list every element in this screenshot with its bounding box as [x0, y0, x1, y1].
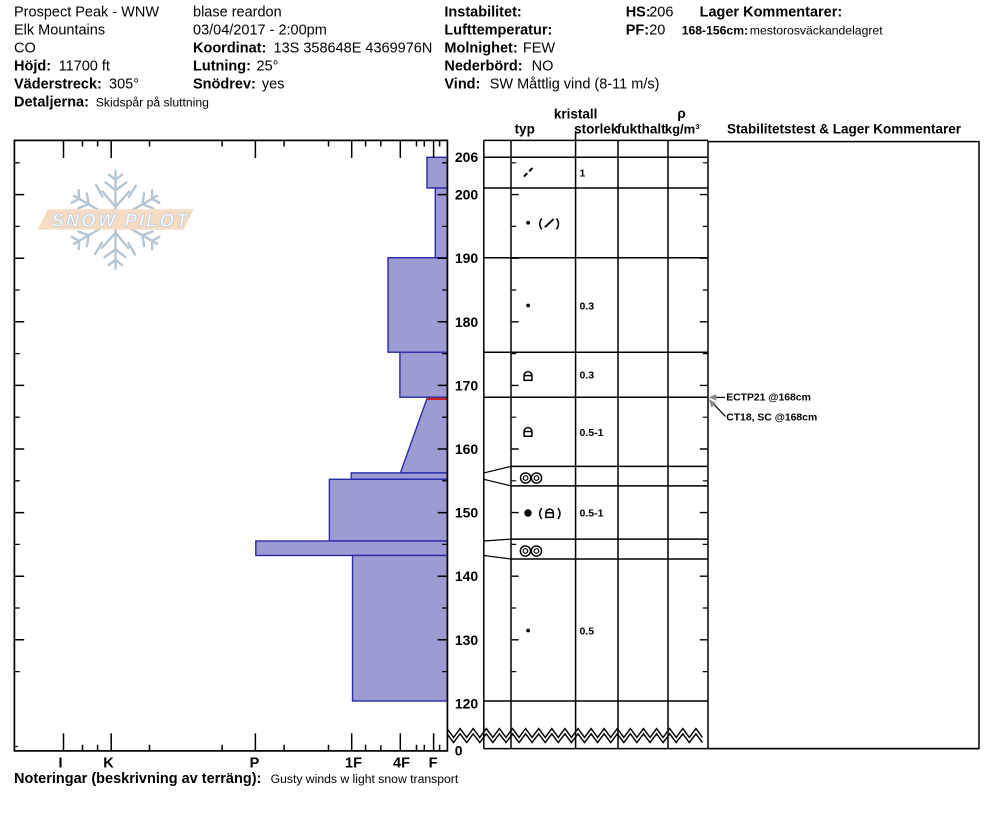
svg-text:03/04/2017 - 2:00pm: 03/04/2017 - 2:00pm [193, 23, 327, 39]
svg-text:206: 206 [455, 149, 479, 165]
svg-text:Lutning: 25°: Lutning: 25° [193, 59, 278, 75]
svg-text:ρ: ρ [677, 106, 685, 121]
svg-text:0: 0 [455, 743, 463, 759]
svg-text:Detaljerna: Skidspår på sluttn: Detaljerna: Skidspår på sluttning [14, 95, 209, 111]
svg-text:1F: 1F [345, 756, 362, 772]
svg-text:170: 170 [455, 377, 479, 393]
svg-text:Snödrev: yes: Snödrev: yes [193, 77, 284, 93]
svg-text:Vind: SW Måttlig vind (8-11 m/: Vind: SW Måttlig vind (8-11 m/s) [444, 77, 659, 93]
svg-text:ECTP21 @168cm: ECTP21 @168cm [726, 393, 811, 404]
svg-text:CO: CO [14, 41, 36, 57]
svg-text:0.5: 0.5 [580, 625, 595, 637]
svg-text:Väderstreck: 305°: Väderstreck: 305° [14, 77, 139, 93]
svg-text:PF:: PF: [626, 23, 649, 39]
svg-text:130: 130 [455, 632, 479, 648]
svg-text:storlek: storlek [574, 121, 619, 136]
svg-text:I: I [58, 756, 62, 772]
svg-text:Koordinat: 13S 358648E 4369976: Koordinat: 13S 358648E 4369976N [193, 41, 432, 57]
svg-text:0.5-1: 0.5-1 [580, 427, 604, 439]
svg-text:150: 150 [455, 505, 479, 521]
svg-text:168-156cm: mestorosväckandelag: 168-156cm: mestorosväckandelagret [682, 24, 883, 38]
svg-text:Nederbörd: NO: Nederbörd: NO [444, 59, 553, 75]
svg-text:P: P [250, 756, 260, 772]
svg-text:Stabilitetstest & Lager Kommen: Stabilitetstest & Lager Kommentarer [727, 121, 962, 136]
svg-text:160: 160 [455, 441, 479, 457]
svg-text:fukthalt: fukthalt [617, 121, 666, 136]
svg-text:Elk Mountains: Elk Mountains [14, 23, 105, 39]
svg-text:kg/m³: kg/m³ [665, 121, 700, 136]
svg-text:190: 190 [455, 250, 479, 266]
svg-text:Noteringar (beskrivning av ter: Noteringar (beskrivning av terräng): Gus… [14, 771, 459, 787]
svg-text:Molnighet: FEW: Molnighet: FEW [444, 41, 555, 57]
svg-text:4F: 4F [393, 756, 410, 772]
svg-text:206: 206 [649, 5, 673, 21]
svg-text:0.5-1: 0.5-1 [580, 508, 604, 520]
svg-text:Instabilitet:: Instabilitet: [444, 5, 521, 21]
svg-text:HS:: HS: [626, 5, 651, 21]
svg-text:Höjd: 11700 ft: Höjd: 11700 ft [14, 59, 110, 75]
svg-text:SNOW PILOT: SNOW PILOT [50, 210, 192, 231]
svg-text:20: 20 [649, 23, 665, 39]
svg-text:Lufttemperatur:: Lufttemperatur: [444, 23, 552, 39]
svg-text:0.3: 0.3 [580, 301, 595, 313]
svg-text:blase reardon: blase reardon [193, 5, 282, 21]
svg-text:CT18, SC @168cm: CT18, SC @168cm [726, 412, 817, 423]
svg-text:200: 200 [455, 187, 479, 203]
svg-text:0.3: 0.3 [580, 370, 595, 382]
svg-text:120: 120 [455, 695, 479, 711]
svg-text:180: 180 [455, 314, 479, 330]
svg-text:kristall: kristall [554, 106, 598, 121]
svg-text:1: 1 [580, 167, 586, 179]
svg-text:Lager Kommentarer:: Lager Kommentarer: [700, 5, 843, 21]
svg-text:F: F [429, 756, 438, 772]
svg-text:Prospect Peak - WNW: Prospect Peak - WNW [14, 5, 159, 21]
svg-text:typ: typ [515, 121, 535, 136]
svg-text:140: 140 [455, 568, 479, 584]
svg-text:K: K [103, 756, 114, 772]
